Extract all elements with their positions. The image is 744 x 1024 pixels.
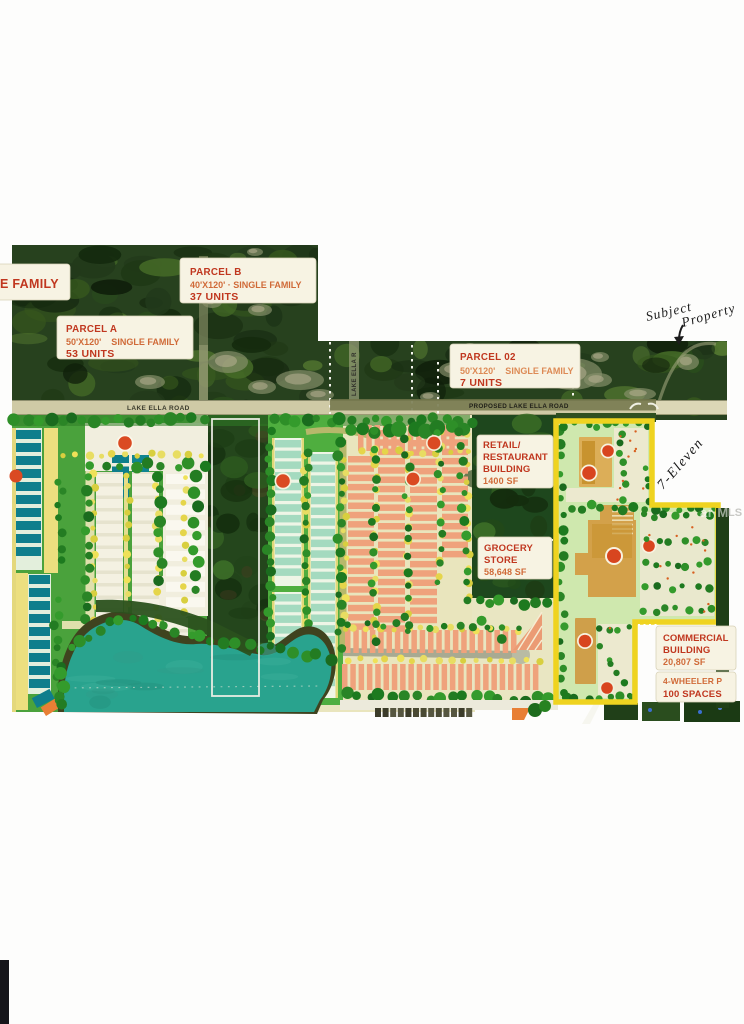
svg-text:20,807 SF: 20,807 SF [663, 657, 706, 667]
svg-text:LS: LS [728, 507, 742, 519]
svg-text:PARCEL B: PARCEL B [190, 267, 242, 278]
svg-text:40'X120' · SINGLE FAMILY: 40'X120' · SINGLE FAMILY [190, 280, 302, 290]
svg-text:BUILDING: BUILDING [663, 645, 711, 656]
svg-text:PARCEL A: PARCEL A [66, 324, 117, 335]
svg-text:50'X120' SINGLE FAMILY: 50'X120' SINGLE FAMILY [460, 366, 574, 376]
svg-text:COMMERCIAL: COMMERCIAL [663, 633, 729, 644]
svg-text:PROPOSED LAKE ELLA ROAD: PROPOSED LAKE ELLA ROAD [469, 403, 569, 410]
svg-text:37 UNITS: 37 UNITS [190, 291, 239, 303]
svg-text:BUILDING: BUILDING [483, 464, 531, 475]
svg-text:RESTAURANT: RESTAURANT [483, 452, 548, 463]
svg-text:PARCEL 02: PARCEL 02 [460, 352, 516, 363]
svg-text:53 UNITS: 53 UNITS [66, 348, 115, 360]
svg-text:100 SPACES: 100 SPACES [663, 689, 722, 700]
svg-text:4-WHEELER P: 4-WHEELER P [663, 676, 722, 686]
svg-text:STORE: STORE [484, 555, 518, 566]
svg-text:RETAIL/: RETAIL/ [483, 440, 521, 451]
svg-text:50'X120' SINGLE FAMILY: 50'X120' SINGLE FAMILY [66, 337, 180, 347]
svg-text:E FAMILY: E FAMILY [0, 277, 59, 291]
svg-text:1400 SF: 1400 SF [483, 476, 519, 486]
svg-text:LAKE ELLA ROAD: LAKE ELLA ROAD [127, 405, 190, 412]
svg-text:58,648 SF: 58,648 SF [484, 567, 527, 577]
svg-text:LAKE ELLA R: LAKE ELLA R [352, 352, 358, 396]
svg-text:GROCERY: GROCERY [484, 543, 534, 554]
svg-text:7 UNITS: 7 UNITS [460, 377, 502, 389]
